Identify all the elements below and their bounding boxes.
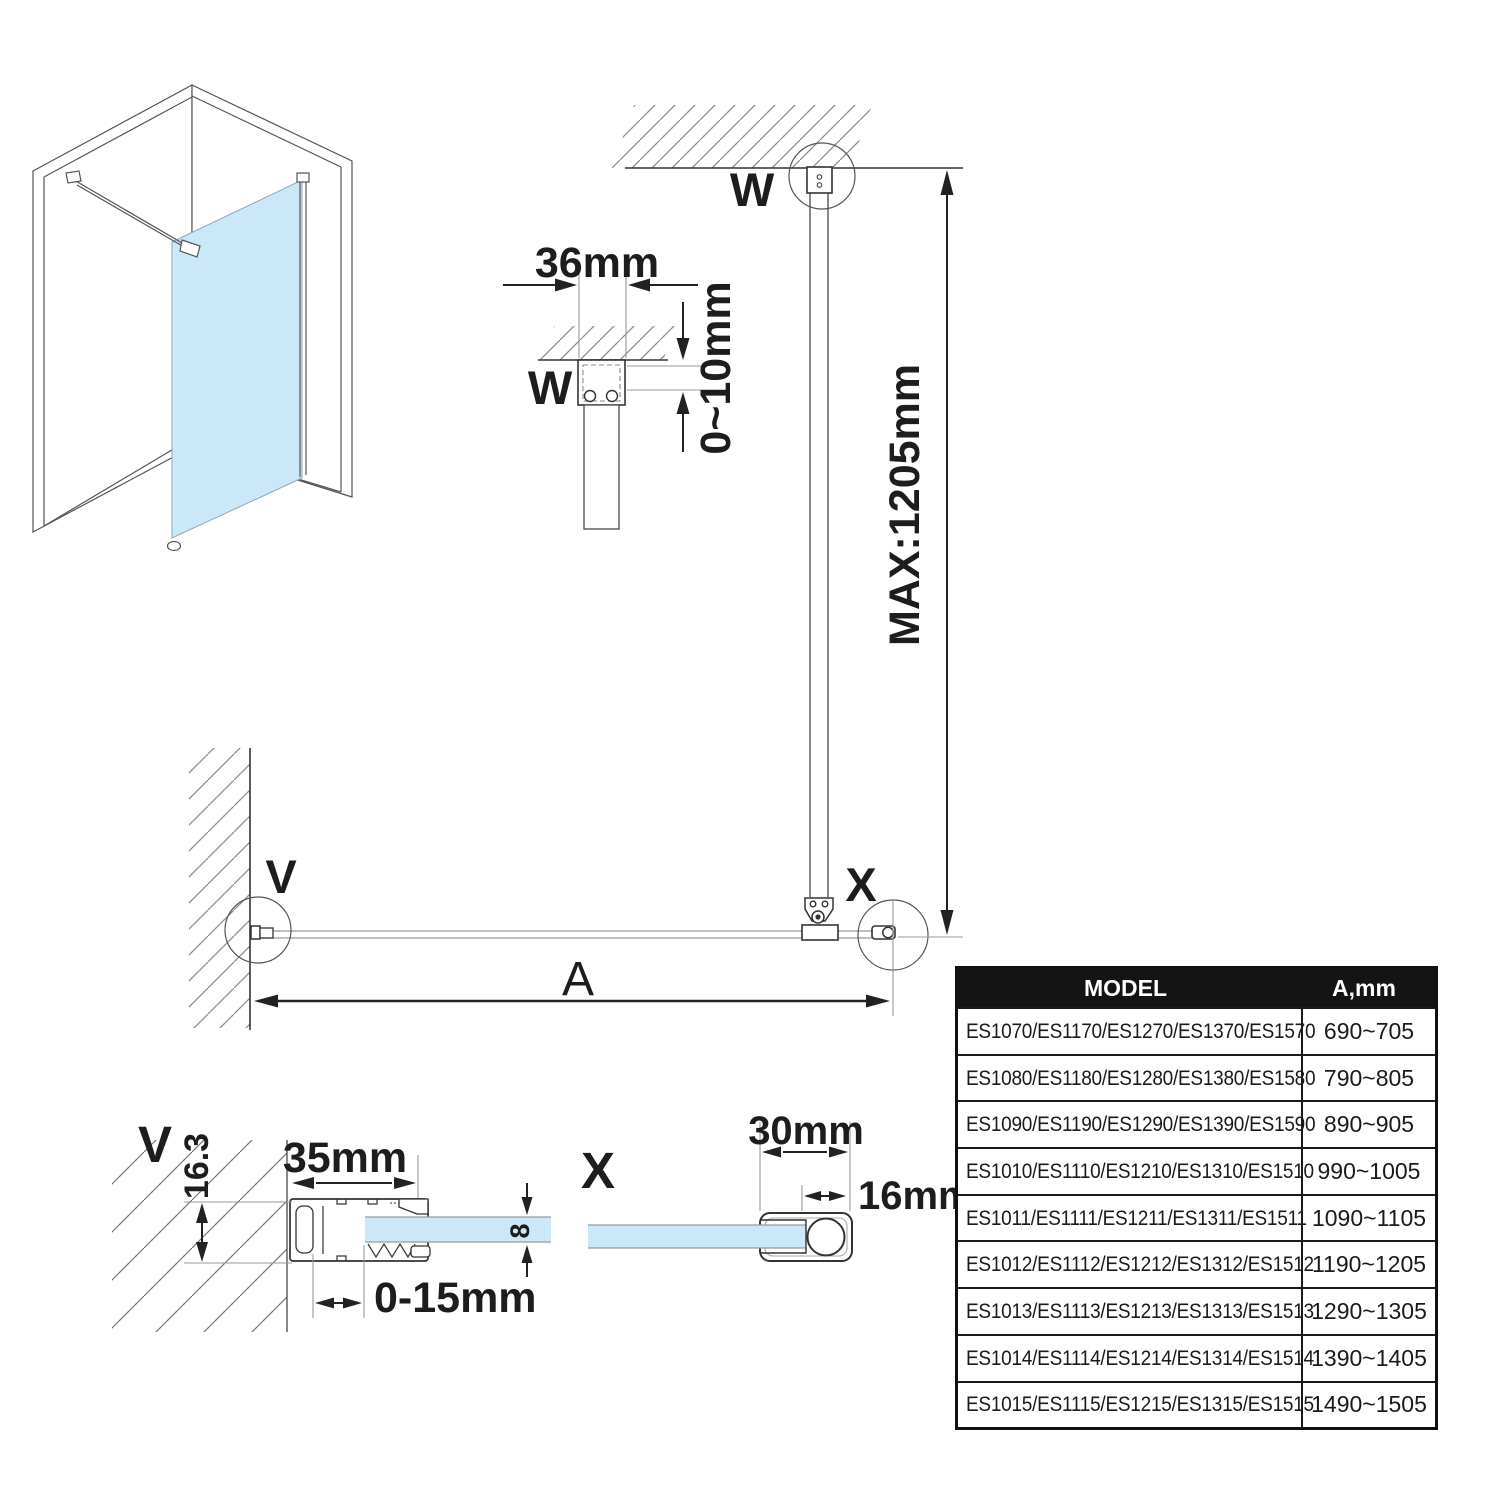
dim-max-label: MAX:1205mm [881, 364, 929, 646]
dim-0-10mm-label: 0~10mm [692, 281, 740, 454]
detail-x: X 30mm 16mm [581, 1109, 974, 1261]
table-header-a-mm: A,mm [1293, 975, 1435, 1002]
dim-glass-8-label: 8 [505, 1223, 535, 1238]
model-spec-table: MODEL A,mm ES1070/ES1170/ES1270/ES1370/E… [955, 966, 1438, 1430]
installation-diagram: W V X A MAX:1205mm [0, 0, 1500, 1500]
a-mm-cell: 1490~1505 [1301, 1383, 1435, 1428]
plan-support-bar [810, 193, 828, 897]
table-row: ES1011/ES1111/ES1211/ES1311/ES1511 1090~… [958, 1194, 1435, 1241]
model-cell: ES1011/ES1111/ES1211/ES1311/ES1511 [966, 1206, 1307, 1231]
table-row: ES1070/ES1170/ES1270/ES1370/ES1570 690~7… [958, 1007, 1435, 1054]
ceiling-hatch [612, 105, 872, 168]
model-cell: ES1015/ES1115/ES1215/ES1315/ES1515 [966, 1392, 1314, 1417]
ceiling-bracket [807, 167, 832, 193]
iso-left-wall [33, 85, 192, 532]
model-cell: ES1070/ES1170/ES1270/ES1370/ES1570 [966, 1019, 1315, 1044]
iso-bar-wall-bracket [66, 171, 81, 183]
table-header-model: MODEL [958, 975, 1293, 1002]
a-mm-cell: 1290~1305 [1301, 1289, 1435, 1334]
wall-hatch [189, 748, 250, 1028]
dim-a-label: A [562, 953, 594, 1006]
table-row: ES1010/ES1110/ES1210/ES1310/ES1510 990~1… [958, 1147, 1435, 1194]
dim-36mm-label: 36mm [535, 239, 659, 287]
model-cell: ES1014/ES1114/ES1214/ES1314/ES1514 [966, 1346, 1314, 1371]
a-mm-cell: 1090~1105 [1301, 1196, 1435, 1241]
model-cell: ES1090/ES1190/ES1290/ES1390/ES1590 [966, 1112, 1315, 1137]
dim-0-15mm-label: 0-15mm [374, 1274, 537, 1322]
isometric-view [33, 85, 352, 551]
bar-clamp-circle [808, 1219, 845, 1256]
detail-w-hatch [540, 326, 677, 360]
iso-glass-panel [172, 180, 302, 538]
table-row: ES1090/ES1190/ES1290/ES1390/ES1590 890~9… [958, 1100, 1435, 1147]
detail-x-glass [588, 1225, 806, 1248]
detail-x-label: X [581, 1142, 615, 1199]
table-row: ES1012/ES1112/ES1212/ES1312/ES1512 1190~… [958, 1240, 1435, 1287]
plan-label-x: X [845, 858, 876, 911]
dim-35mm-label: 35mm [283, 1134, 407, 1182]
wall-mount-bracket [251, 926, 273, 939]
dim-16-3-label: 16.3 [178, 1133, 216, 1199]
a-mm-cell: 1190~1205 [1301, 1242, 1435, 1287]
dim-16mm [802, 1185, 846, 1211]
a-mm-cell: 690~705 [1301, 1009, 1435, 1054]
detail-w-bar [584, 405, 619, 529]
table-row: ES1015/ES1115/ES1215/ES1315/ES1515 1490~… [958, 1381, 1435, 1428]
detail-v-label: V [138, 1116, 172, 1173]
detail-v: V 16.3 35mm 0-15mm 8 [112, 1116, 551, 1332]
dim-30mm-label: 30mm [748, 1109, 864, 1153]
glass-end-cap [872, 926, 895, 939]
detail-w-label: W [528, 361, 573, 414]
table-row: ES1080/ES1180/ES1280/ES1380/ES1580 790~8… [958, 1054, 1435, 1101]
plan-glass-panel [256, 931, 872, 938]
table-row: ES1013/ES1113/ES1213/ES1313/ES1513 1290~… [958, 1287, 1435, 1334]
dim-0-10mm [627, 302, 701, 452]
a-mm-cell: 1390~1405 [1301, 1336, 1435, 1381]
plan-label-w: W [730, 163, 775, 216]
bar-glass-hinge [802, 898, 838, 940]
a-mm-cell: 890~905 [1301, 1102, 1435, 1147]
detail-w: W 36mm 0~10mm [503, 239, 740, 529]
table-header-row: MODEL A,mm [958, 969, 1435, 1007]
model-cell: ES1080/ES1180/ES1280/ES1380/ES1580 [966, 1066, 1315, 1091]
model-cell: ES1012/ES1112/ES1212/ES1312/ES1512 [966, 1252, 1314, 1277]
iso-floor-foot [168, 542, 181, 551]
plan-label-v: V [265, 850, 297, 903]
model-cell: ES1010/ES1110/ES1210/ES1310/ES1510 [966, 1159, 1314, 1184]
model-cell: ES1013/ES1113/ES1213/ES1313/ES1513 [966, 1299, 1314, 1324]
a-mm-cell: 990~1005 [1301, 1149, 1435, 1194]
table-row: ES1014/ES1114/ES1214/ES1314/ES1514 1390~… [958, 1334, 1435, 1381]
a-mm-cell: 790~805 [1301, 1056, 1435, 1101]
iso-profile-cap [297, 173, 309, 182]
